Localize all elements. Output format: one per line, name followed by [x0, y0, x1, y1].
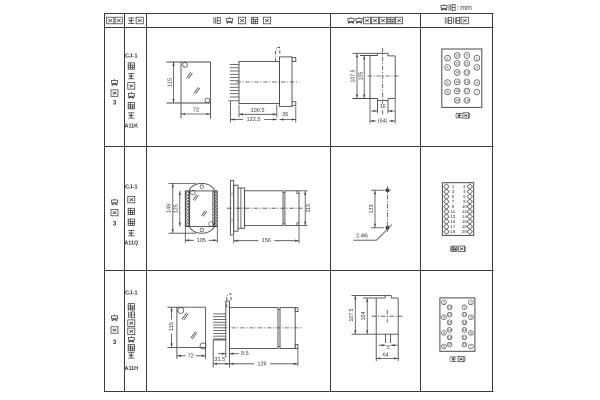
svg-text:(: (	[449, 357, 451, 363]
svg-text:64: 64	[383, 352, 389, 358]
svg-text:5: 5	[470, 331, 472, 335]
svg-text:5: 5	[476, 81, 478, 85]
svg-text:19: 19	[463, 343, 467, 347]
svg-text:4: 4	[443, 315, 445, 319]
svg-text:9: 9	[466, 54, 468, 58]
svg-text:13: 13	[465, 71, 469, 75]
svg-text:115: 115	[167, 78, 173, 87]
svg-text:11: 11	[465, 62, 469, 66]
svg-text:7: 7	[476, 90, 478, 94]
svg-text:12: 12	[455, 62, 459, 66]
svg-text:16: 16	[448, 328, 452, 332]
svg-text:15: 15	[465, 80, 469, 84]
svg-text:126: 126	[257, 361, 266, 367]
svg-text:16: 16	[455, 80, 459, 84]
svg-text:107.5: 107.5	[349, 308, 355, 321]
svg-text:8: 8	[443, 344, 445, 348]
svg-text:11: 11	[463, 313, 467, 317]
svg-text:3: 3	[113, 221, 117, 228]
svg-text:2: 2	[443, 300, 445, 304]
svg-text:115: 115	[169, 322, 175, 331]
svg-text:1: 1	[476, 56, 478, 60]
svg-text:72: 72	[193, 107, 199, 113]
svg-text:18: 18	[448, 335, 452, 339]
svg-text:3: 3	[113, 339, 117, 346]
svg-text:20: 20	[448, 343, 452, 347]
svg-text:10: 10	[448, 305, 452, 309]
svg-text:3: 3	[113, 100, 117, 107]
svg-text:104: 104	[361, 312, 367, 321]
svg-text::: :	[457, 5, 459, 12]
svg-text:105: 105	[358, 72, 364, 81]
svg-text:14: 14	[448, 320, 452, 324]
svg-text:CJ-1: CJ-1	[125, 184, 138, 190]
svg-text:A11H: A11H	[125, 366, 139, 372]
svg-text:35: 35	[282, 112, 288, 118]
svg-text:4: 4	[447, 66, 449, 70]
svg-text:): )	[464, 357, 466, 363]
svg-text:17: 17	[463, 335, 467, 339]
svg-text:72: 72	[187, 353, 193, 359]
svg-text:): )	[464, 246, 466, 252]
svg-text:122.5: 122.5	[247, 117, 261, 123]
svg-text:20: 20	[462, 229, 467, 234]
svg-text:16: 16	[380, 104, 386, 110]
svg-text:A11K: A11K	[125, 124, 139, 130]
svg-text:3: 3	[470, 315, 472, 319]
svg-text:7: 7	[470, 344, 472, 348]
svg-text:125: 125	[174, 204, 180, 213]
svg-text:10: 10	[455, 54, 459, 58]
svg-text:8: 8	[447, 90, 449, 94]
svg-text:A11Q: A11Q	[124, 241, 138, 247]
svg-text:16: 16	[385, 344, 390, 349]
svg-text:9: 9	[463, 305, 465, 309]
svg-text:156: 156	[262, 238, 271, 244]
svg-text:19: 19	[451, 229, 456, 234]
svg-text:107.5: 107.5	[351, 69, 357, 82]
svg-text:18: 18	[455, 89, 459, 93]
svg-text:9.5: 9.5	[241, 351, 249, 357]
svg-text:19: 19	[465, 99, 469, 103]
svg-text:CJ-1: CJ-1	[125, 291, 138, 297]
svg-text:14: 14	[455, 71, 459, 75]
svg-text:2-Φ6: 2-Φ6	[356, 234, 368, 240]
svg-text:133: 133	[369, 205, 375, 214]
svg-text:6: 6	[447, 81, 449, 85]
svg-text:115: 115	[306, 204, 312, 213]
svg-text:15: 15	[463, 328, 467, 332]
svg-text:(64): (64)	[378, 118, 387, 124]
svg-text:3: 3	[476, 66, 478, 70]
svg-text:2: 2	[447, 56, 449, 60]
svg-text:12: 12	[448, 313, 452, 317]
svg-text:31.5: 31.5	[214, 357, 225, 363]
svg-text:20: 20	[455, 99, 459, 103]
svg-text:1: 1	[470, 300, 472, 304]
svg-text:CJ-1: CJ-1	[125, 53, 138, 59]
svg-text:149: 149	[167, 204, 173, 213]
svg-text:100.5: 100.5	[251, 108, 265, 114]
svg-text:mm: mm	[460, 5, 472, 12]
svg-text:105: 105	[197, 238, 206, 244]
svg-text:6: 6	[443, 331, 445, 335]
svg-text:): )	[468, 113, 470, 119]
svg-text:17: 17	[465, 89, 469, 93]
svg-text:13: 13	[463, 320, 467, 324]
